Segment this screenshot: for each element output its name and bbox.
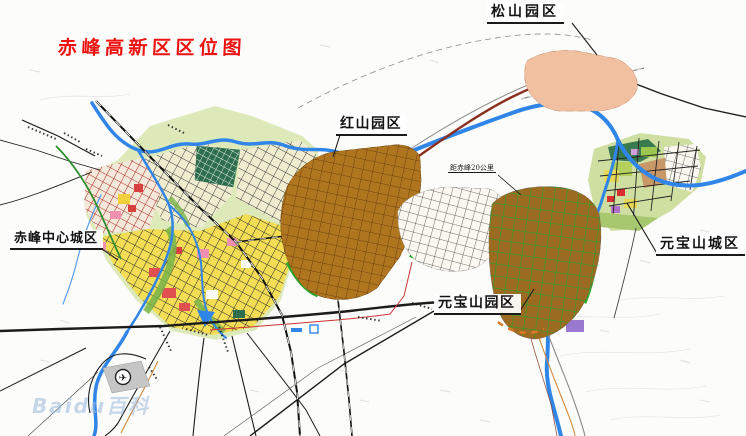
label-yuanbaoshan-city: 元宝山城区	[656, 235, 745, 256]
map-graphic: ✈	[0, 0, 746, 436]
highway-markers	[291, 325, 318, 333]
svg-text:✈: ✈	[119, 373, 127, 384]
label-yuanbaoshan-park: 元宝山园区	[434, 294, 521, 315]
baidu-watermark: Baidu百科	[32, 390, 150, 419]
label-chifeng-center-city: 赤峰中心城区	[10, 230, 103, 250]
label-songshan-park: 松山园区	[487, 3, 564, 24]
zone-yuanbaoshan-city	[588, 133, 706, 231]
label-distance-note: 距赤峰20公里	[448, 164, 496, 173]
map-canvas: ✈ 赤峰高新区区位图 松山园区 红山园区 赤峰中心城区 元宝山园区 元宝山城区 …	[0, 0, 746, 436]
label-hongshan-park: 红山园区	[336, 115, 407, 136]
map-title: 赤峰高新区区位图	[57, 33, 246, 60]
airport-icon: ✈	[103, 361, 150, 393]
